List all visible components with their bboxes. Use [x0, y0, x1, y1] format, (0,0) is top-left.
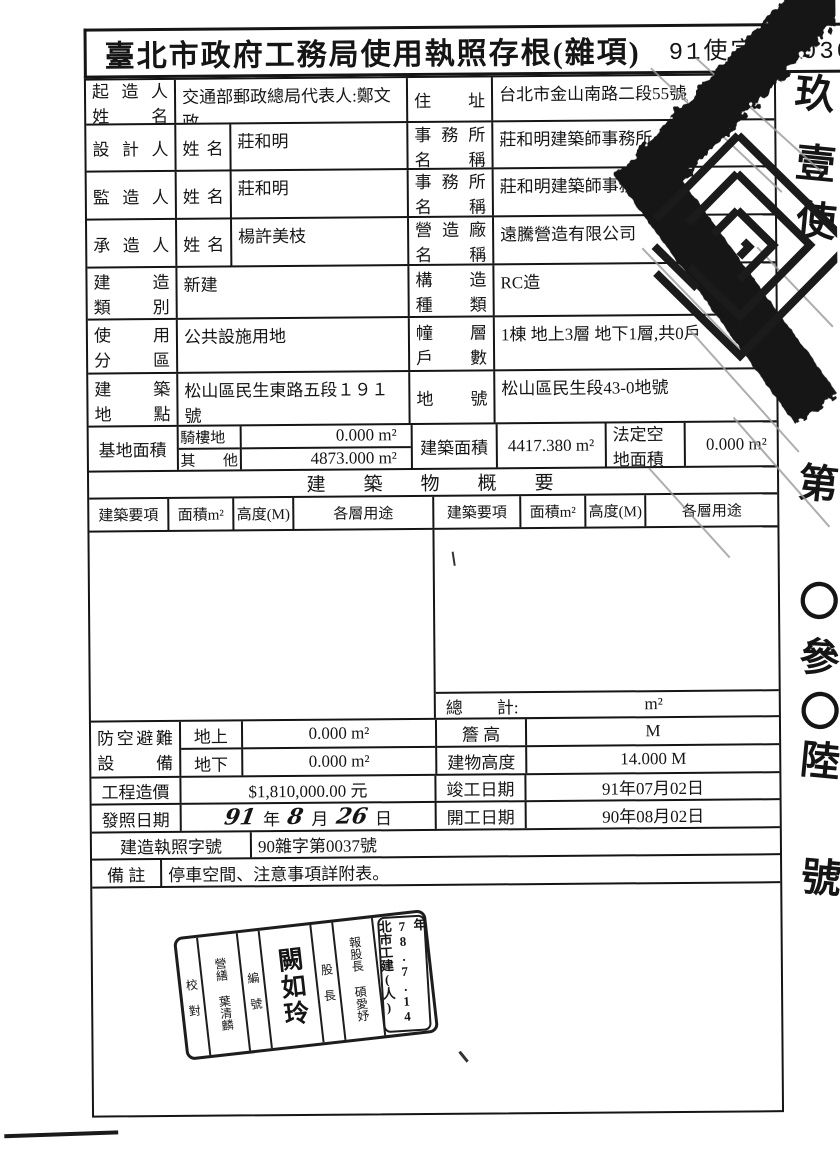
owner-role-label2: 姓 名: [92, 101, 168, 123]
summary-body-left: [89, 530, 435, 697]
structure-type-value: RC造: [494, 263, 775, 315]
issue-month-handwritten: 8: [286, 804, 306, 830]
supervisor-name-value: 莊和明: [232, 170, 409, 217]
air-raid-label1: 防空避難: [97, 724, 173, 750]
note-value: 停車空間、注意事項詳附表。: [162, 855, 780, 886]
title-band: 臺北市政府工務局使用執照存根(雜項) 91使字第 0306 號: [84, 23, 840, 79]
margin-char-3: 使: [794, 200, 840, 244]
air-raid-label2: 設 備: [97, 749, 173, 775]
issue-month-unit: 月: [311, 804, 328, 829]
issue-day-handwritten: 26: [334, 803, 369, 829]
lot-number-value: 松山區民生段43-0地號: [495, 369, 776, 422]
col-header-use-right: 各層用途: [646, 494, 777, 526]
above-ground-label: 地上: [181, 721, 243, 747]
margin-char-9: 號: [799, 857, 840, 901]
site-area-label: 基地面積: [89, 427, 179, 471]
legal-open-value: 0.000 m²: [686, 422, 777, 466]
build-class-label2: 類 別: [94, 293, 170, 319]
row-location: 建 築 地 點 松山區民生東路五段１９１號 地 號 松山區民生段43-0地號: [88, 369, 776, 427]
location-label2: 地 點: [94, 399, 170, 425]
contractor-name-label: 姓 名: [183, 230, 224, 255]
row-airraid-eave: 防空避難 設 備 地上 0.000 m² 地下 0.000 m² 簷 高 M: [91, 717, 779, 778]
contractor-firm-label2: 名 稱: [415, 240, 486, 264]
row-summary-header: 建築要項 面積m² 高度(M) 各層用途 建築要項 面積m² 高度(M) 各層用…: [89, 494, 777, 532]
completion-date-value: 91年07月02日: [526, 773, 779, 800]
cost-value: $1,810,000.00 元: [181, 776, 436, 803]
contractor-name-value: 楊許美枝: [232, 218, 409, 265]
row-owner: 起 造 人 姓 名 交通部郵政總局代表人:鄭文政 住 址 台北市金山南路二段55…: [86, 75, 774, 125]
summary-body-right: [434, 527, 778, 694]
total-label: 總 計:: [442, 693, 519, 718]
row-summary-body: [89, 527, 778, 696]
col-header-item-right: 建築要項: [434, 496, 521, 528]
right-margin-handwriting: 玖 壹 使 第 〇 參 〇 陸 號: [0, 0, 835, 3]
location-value: 松山區民生東路五段１９１號: [178, 372, 410, 425]
owner-role-label: 起 造 人: [92, 80, 168, 102]
note-label: 備 註: [92, 860, 162, 887]
margin-char-5: 〇: [797, 581, 840, 625]
other-land-value: 4873.000 m²: [242, 448, 411, 470]
storeys-label2: 戶 數: [416, 343, 487, 369]
zoning-label1: 使 用: [94, 321, 170, 347]
contractor-role-label: 承 造 人: [93, 230, 169, 256]
issue-day-unit: 日: [375, 804, 392, 829]
col-header-height-left: 高度(M): [234, 498, 294, 529]
summary-body-left-cont: [91, 694, 436, 721]
issue-date-label: 發照日期: [92, 805, 182, 832]
start-date-label: 開工日期: [437, 802, 527, 829]
designer-office-label1: 事 務 所: [414, 122, 485, 145]
cost-label: 工程造價: [91, 778, 181, 804]
issue-year-handwritten: 91: [222, 804, 257, 830]
col-header-use-left: 各層用途: [294, 497, 434, 529]
supervisor-name-label: 姓 名: [183, 182, 224, 207]
designer-office-value: 莊和明建築師事務所: [493, 120, 774, 167]
col-header-height-right: 高度(M): [586, 495, 646, 526]
construction-permit-value: 90雜字第0037號: [252, 828, 780, 857]
building-area-value: 4417.380 m²: [497, 424, 607, 468]
storeys-label1: 幢 層: [416, 318, 487, 344]
above-ground-value: 0.000 m²: [243, 720, 435, 748]
margin-char-2: 壹: [794, 143, 840, 187]
location-label1: 建 築: [94, 374, 170, 400]
eave-height-value: M: [527, 717, 779, 745]
completion-date-label: 竣工日期: [436, 775, 526, 801]
storeys-value: 1棟 地上3層 地下1層,共0戶: [495, 315, 776, 369]
below-ground-value: 0.000 m²: [243, 748, 435, 776]
contractor-firm-label1: 營 造 廠: [415, 217, 486, 241]
margin-char-1: 玖: [793, 73, 840, 117]
row-zoning: 使 用 分 區 公共設施用地 幢 層 戶 數 1棟 地上3層 地下1層,共0戶: [88, 315, 776, 374]
total-cell: 總 計: m²: [436, 691, 779, 718]
eave-height-label: 簷 高: [437, 719, 527, 746]
construction-permit-label: 建造執照字號: [92, 832, 252, 858]
col-header-item-left: 建築要項: [89, 499, 169, 531]
designer-name-label: 姓 名: [182, 135, 223, 160]
col-header-area-right: 面積m²: [521, 496, 586, 528]
total-unit: m²: [644, 694, 662, 714]
designer-name-value: 莊和明: [231, 123, 408, 169]
margin-char-7: 〇: [798, 691, 840, 735]
structure-type-label2: 種 類: [416, 290, 487, 316]
owner-name-value: 交通部郵政總局代表人:鄭文政: [176, 78, 408, 123]
other-land-label: 其 他: [180, 449, 238, 470]
legal-open-label1: 法定空: [612, 423, 678, 445]
build-class-label1: 建 造: [93, 268, 169, 294]
structure-type-label1: 構 造: [415, 265, 486, 291]
address-label: 住 址: [414, 86, 485, 112]
building-height-label: 建物高度: [437, 747, 527, 774]
contractor-firm-value: 遠騰營造有限公司: [494, 215, 775, 263]
page-edge-line: [4, 1132, 118, 1136]
legal-open-label2: 地面積: [613, 444, 679, 466]
permit-number: 91使字第 0306 號: [641, 29, 840, 67]
designer-role-label: 設 計 人: [92, 135, 168, 161]
row-contractor: 承 造 人 姓 名 楊許美枝 營 造 廠 名 稱 遠騰營造有限公司: [87, 215, 775, 268]
col-header-area-left: 面積m²: [169, 498, 234, 530]
arcade-land-value: 0.000 m²: [242, 425, 411, 449]
margin-char-6: 參: [798, 637, 840, 681]
document-title: 臺北市政府工務局使用執照存根(雜項): [87, 27, 641, 75]
issue-year-unit: 年: [263, 805, 280, 830]
row-build-class: 建 造 類 別 新建 構 造 種 類 RC造: [87, 263, 775, 320]
row-site-area: 基地面積 騎樓地 其 他 0.000 m² 4873.000 m² 建築面積 4…: [89, 422, 777, 472]
summary-banner: 建築物概要: [89, 467, 777, 497]
issue-date-value: 91 年 8 月 26 日: [182, 803, 437, 831]
margin-char-4: 第: [796, 463, 840, 507]
row-supervisor: 監 造 人 姓 名 莊和明 事 務 所 名 稱 莊和明建築師事務所: [87, 167, 775, 220]
supervisor-office-value: 莊和明建築師事務所: [494, 167, 775, 215]
supervisor-role-label: 監 造 人: [93, 182, 169, 208]
row-designer: 設 計 人 姓 名 莊和明 事 務 所 名 稱 莊和明建築師事務所: [86, 120, 774, 172]
building-area-label: 建築面積: [413, 424, 498, 468]
below-ground-label: 地下: [181, 749, 243, 775]
building-height-value: 14.000 M: [527, 745, 779, 773]
start-date-value: 90年08月02日: [527, 800, 780, 828]
zoning-label2: 分 區: [94, 346, 170, 372]
designer-office-label2: 名 稱: [414, 145, 485, 168]
scanned-document: 臺北市政府工務局使用執照存根(雜項) 91使字第 0306 號 起 造 人 姓 …: [0, 0, 840, 1158]
supervisor-office-label2: 名 稱: [415, 192, 486, 216]
zoning-value: 公共設施用地: [178, 318, 410, 372]
arcade-land-label: 騎樓地: [180, 427, 225, 448]
stamp-date-box: 年78.7.14北市工建(人): [377, 914, 432, 1033]
lot-number-label: 地 號: [416, 384, 487, 410]
build-class-value: 新建: [177, 266, 409, 318]
supervisor-office-label1: 事 務 所: [415, 169, 486, 193]
margin-char-8: 陸: [798, 740, 840, 784]
address-value: 台北市金山南路二段55號: [493, 75, 774, 120]
